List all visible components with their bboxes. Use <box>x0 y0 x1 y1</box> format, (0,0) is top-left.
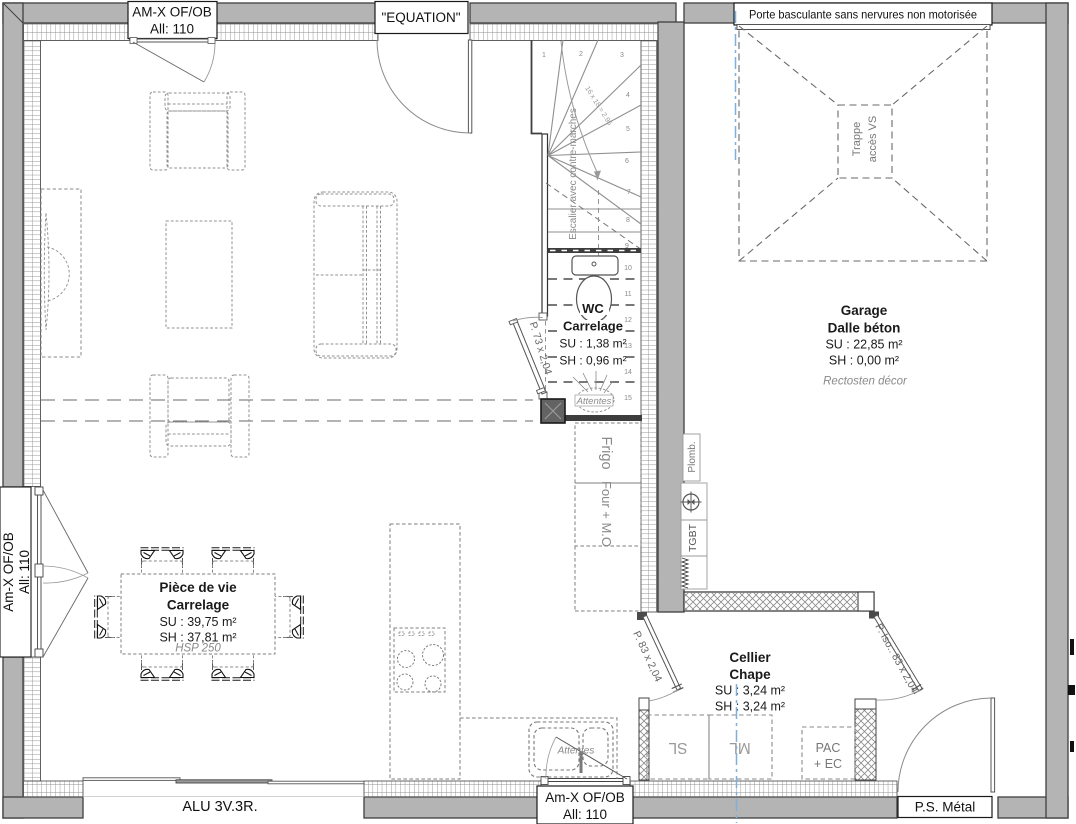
svg-text:Frigo: Frigo <box>598 436 614 469</box>
svg-text:Carrelage: Carrelage <box>563 319 623 334</box>
svg-text:PAC: PAC <box>816 741 841 755</box>
svg-text:12: 12 <box>624 317 632 324</box>
svg-text:2: 2 <box>579 51 583 58</box>
svg-text:SH : 3,24 m²: SH : 3,24 m² <box>715 700 785 714</box>
svg-text:Garage: Garage <box>841 303 888 318</box>
svg-text:Attentes: Attentes <box>557 746 595 757</box>
svg-text:Chape: Chape <box>729 667 771 682</box>
svg-text:SU : 1,38 m²: SU : 1,38 m² <box>559 337 626 351</box>
svg-text:WC: WC <box>582 301 604 316</box>
svg-text:Cellier: Cellier <box>729 650 771 665</box>
svg-text:SU : 39,75 m²: SU : 39,75 m² <box>159 615 236 629</box>
svg-text:All: 110: All: 110 <box>17 550 32 594</box>
svg-text:All: 110: All: 110 <box>150 22 194 37</box>
svg-text:HSP 250: HSP 250 <box>175 643 221 655</box>
svg-text:AM-X OF/OB: AM-X OF/OB <box>132 5 212 20</box>
svg-text:ML: ML <box>729 739 751 756</box>
svg-text:Am-X OF/OB: Am-X OF/OB <box>545 790 625 805</box>
svg-text:3: 3 <box>620 52 624 59</box>
svg-text:ALU 3V.3R.: ALU 3V.3R. <box>182 799 257 815</box>
svg-text:6: 6 <box>625 158 629 165</box>
svg-text:SH : 0,96 m²: SH : 0,96 m² <box>559 354 626 368</box>
svg-text:10: 10 <box>624 265 632 272</box>
svg-text:"EQUATION": "EQUATION" <box>381 10 460 25</box>
svg-text:All: 110: All: 110 <box>563 807 607 822</box>
svg-text:SL: SL <box>668 739 687 756</box>
svg-text:Plomb.: Plomb. <box>687 441 698 472</box>
svg-text:Trappe: Trappe <box>851 122 863 156</box>
svg-text:Porte basculante sans nervures: Porte basculante sans nervures non motor… <box>749 8 977 22</box>
svg-text:Dalle béton: Dalle béton <box>828 321 901 336</box>
svg-text:accès VS: accès VS <box>867 116 879 162</box>
svg-text:15: 15 <box>624 395 632 402</box>
svg-text:1: 1 <box>542 52 546 59</box>
svg-text:Four + M.O: Four + M.O <box>599 481 614 547</box>
svg-text:SU : 22,85 m²: SU : 22,85 m² <box>825 338 902 352</box>
svg-text:11: 11 <box>624 291 631 298</box>
svg-text:14: 14 <box>624 369 632 376</box>
svg-text:Rectosten décor: Rectosten décor <box>823 376 908 388</box>
svg-text:SU : 3,24 m²: SU : 3,24 m² <box>715 684 785 698</box>
svg-text:Am-X OF/OB: Am-X OF/OB <box>1 532 16 612</box>
svg-text:SH : 0,00 m²: SH : 0,00 m² <box>829 354 899 368</box>
svg-text:Escalier avec contre-marches: Escalier avec contre-marches <box>568 108 579 240</box>
svg-text:7: 7 <box>627 189 631 196</box>
svg-text:5: 5 <box>626 126 630 133</box>
svg-text:8: 8 <box>626 217 630 224</box>
svg-text:P.S. Métal: P.S. Métal <box>915 800 976 815</box>
svg-text:TGBT: TGBT <box>687 523 699 552</box>
svg-text:Carrelage: Carrelage <box>167 598 230 613</box>
svg-text:Pièce de vie: Pièce de vie <box>159 580 237 595</box>
svg-text:Attentes: Attentes <box>576 396 612 407</box>
svg-text:+ EC: + EC <box>814 757 842 771</box>
svg-text:4: 4 <box>626 92 630 99</box>
